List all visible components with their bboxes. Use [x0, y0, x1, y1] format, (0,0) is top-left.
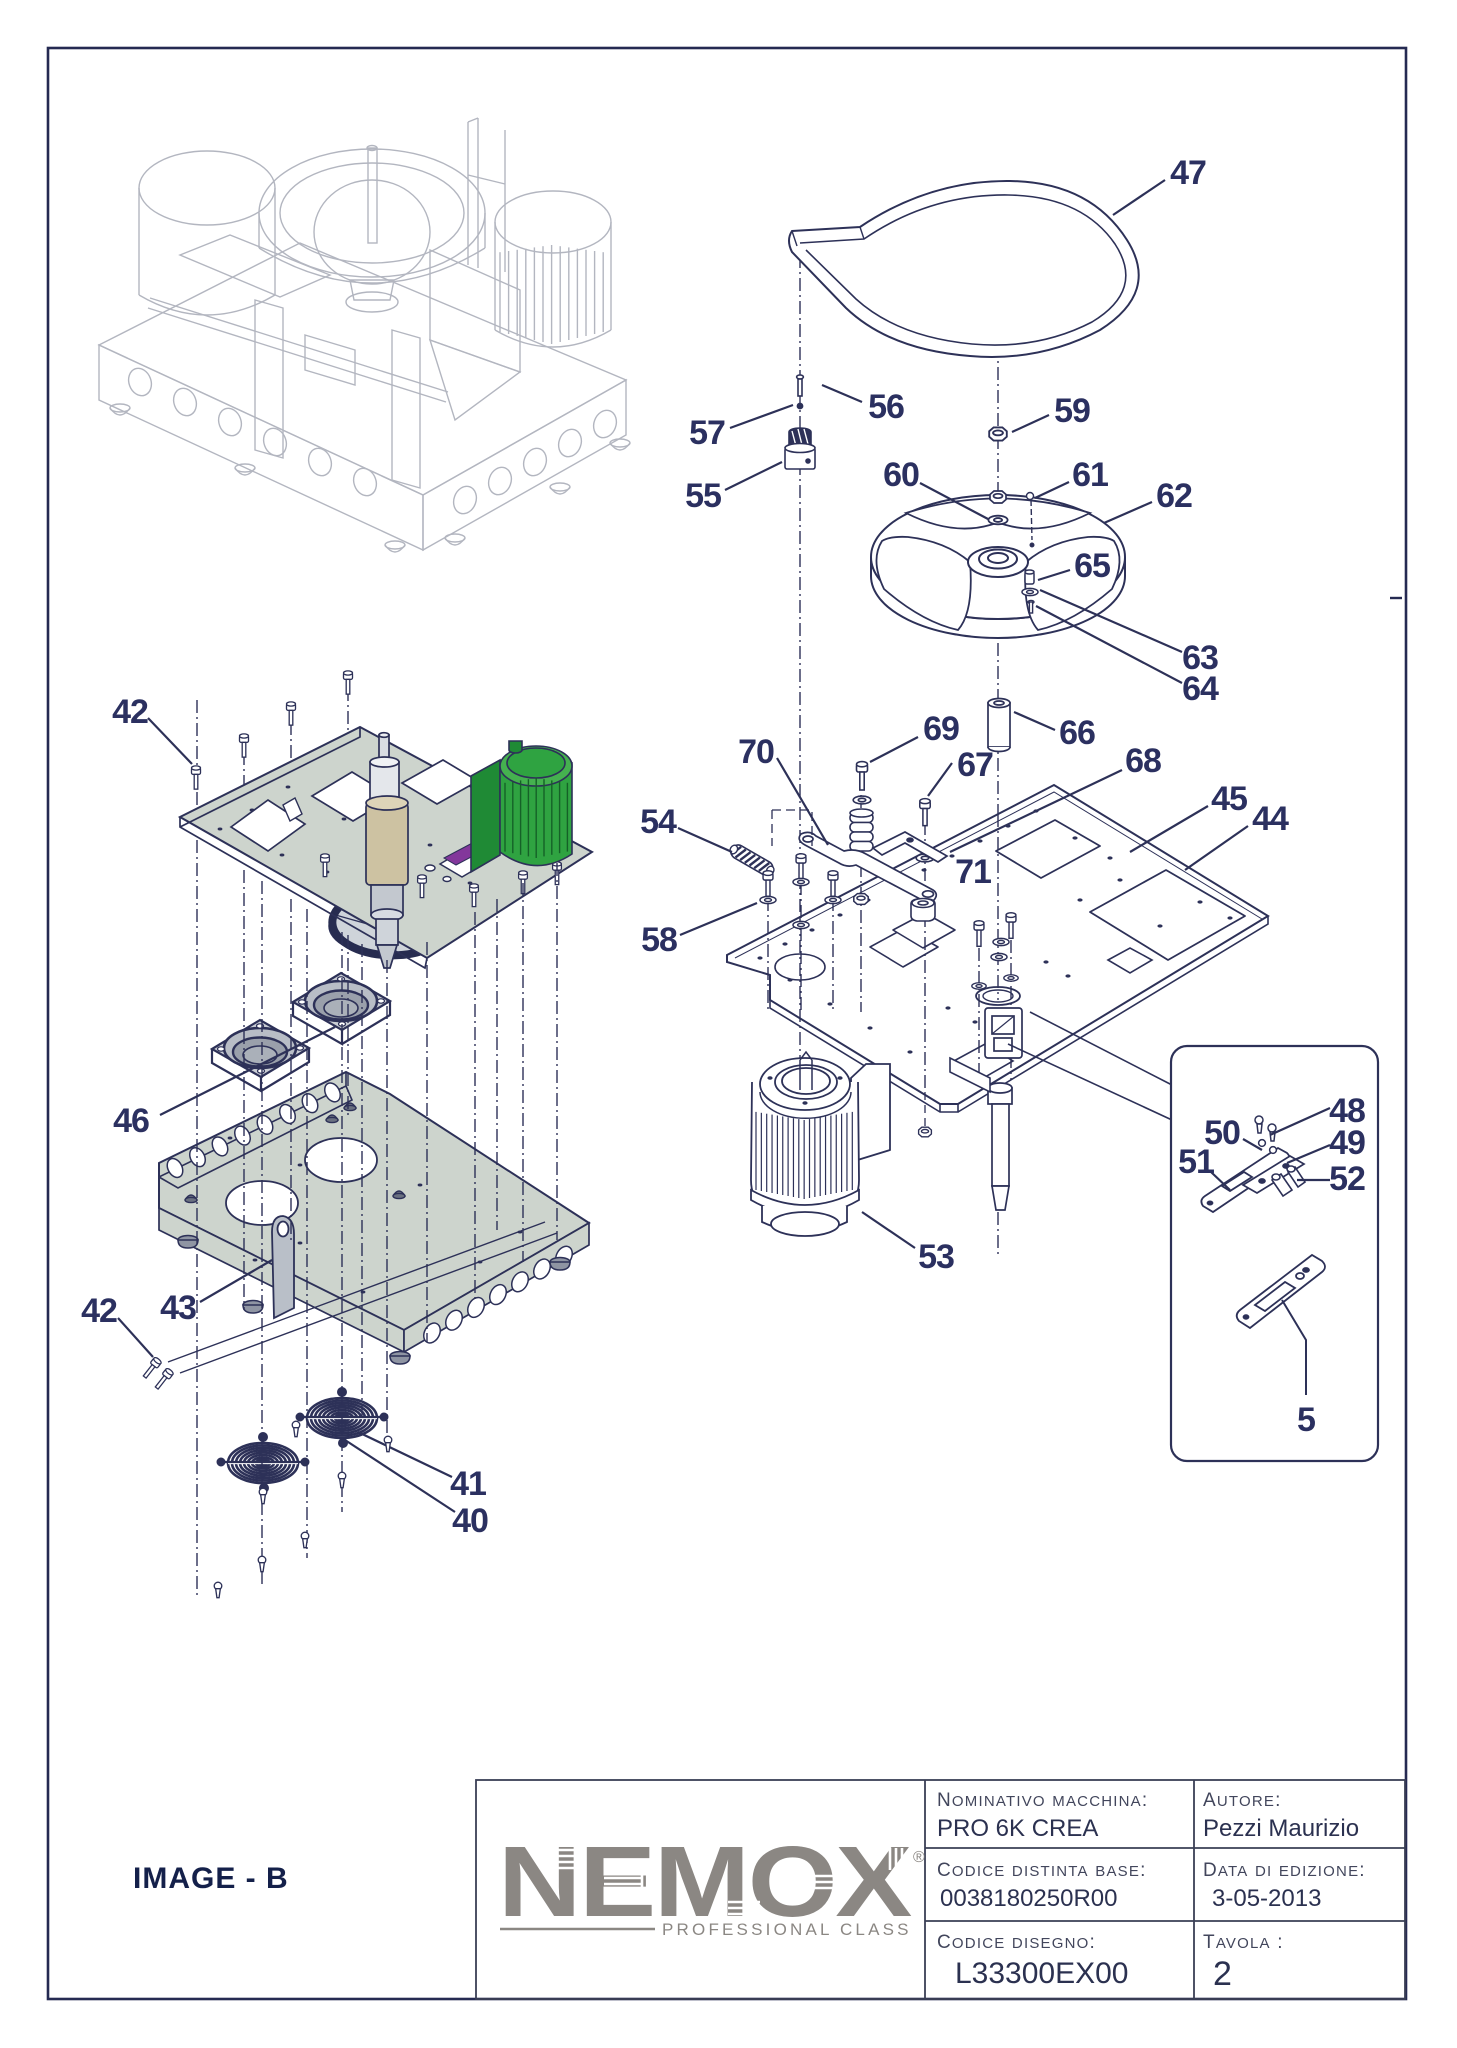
svg-text:NOMINATIVO MACCHINA:: NOMINATIVO MACCHINA: [937, 1790, 1148, 1811]
svg-text:CODICE DISTINTA BASE:: CODICE DISTINTA BASE: [937, 1860, 1147, 1881]
svg-text:65: 65 [1074, 547, 1110, 585]
svg-text:DATA DI EDIZIONE:: DATA DI EDIZIONE: [1203, 1860, 1366, 1881]
svg-text:46: 46 [113, 1102, 149, 1140]
svg-text:PRO 6K CREA: PRO 6K CREA [937, 1815, 1098, 1842]
svg-text:41: 41 [450, 1465, 486, 1503]
svg-text:49: 49 [1329, 1124, 1365, 1162]
svg-text:66: 66 [1059, 714, 1095, 752]
svg-text:61: 61 [1072, 456, 1108, 494]
svg-text:®: ® [913, 1849, 925, 1866]
svg-text:5: 5 [1297, 1401, 1315, 1439]
svg-text:CODICE DISEGNO:: CODICE DISEGNO: [937, 1932, 1096, 1953]
svg-text:70: 70 [738, 733, 774, 771]
svg-text:47: 47 [1170, 154, 1206, 192]
svg-text:42: 42 [81, 1292, 117, 1330]
svg-text:51: 51 [1178, 1143, 1214, 1181]
svg-text:58: 58 [641, 921, 677, 959]
svg-text:IMAGE - B: IMAGE - B [133, 1862, 289, 1895]
svg-text:AUTORE:: AUTORE: [1203, 1790, 1282, 1811]
svg-text:52: 52 [1329, 1160, 1365, 1198]
svg-text:60: 60 [883, 456, 919, 494]
svg-text:54: 54 [640, 803, 677, 841]
svg-text:42: 42 [112, 693, 148, 731]
svg-text:2: 2 [1213, 1955, 1232, 1993]
svg-text:45: 45 [1211, 780, 1247, 818]
svg-text:64: 64 [1182, 670, 1219, 708]
svg-text:43: 43 [160, 1289, 196, 1327]
svg-text:40: 40 [452, 1502, 488, 1540]
svg-text:TAVOLA :: TAVOLA : [1203, 1932, 1284, 1953]
svg-text:71: 71 [955, 853, 991, 891]
svg-text:L33300EX00: L33300EX00 [955, 1957, 1129, 1990]
svg-text:3-05-2013: 3-05-2013 [1212, 1885, 1321, 1912]
svg-text:PROFESSIONAL CLASS: PROFESSIONAL CLASS [662, 1920, 912, 1939]
svg-text:67: 67 [957, 746, 993, 784]
svg-text:53: 53 [918, 1238, 954, 1276]
svg-text:44: 44 [1252, 800, 1289, 838]
svg-text:55: 55 [685, 477, 721, 515]
svg-text:56: 56 [868, 388, 904, 426]
svg-text:57: 57 [689, 414, 725, 452]
svg-text:62: 62 [1156, 477, 1192, 515]
svg-text:0038180250R00: 0038180250R00 [940, 1885, 1118, 1912]
svg-text:Pezzi Maurizio: Pezzi Maurizio [1203, 1815, 1359, 1842]
svg-text:68: 68 [1125, 742, 1161, 780]
svg-text:69: 69 [923, 710, 959, 748]
svg-text:59: 59 [1054, 392, 1090, 430]
